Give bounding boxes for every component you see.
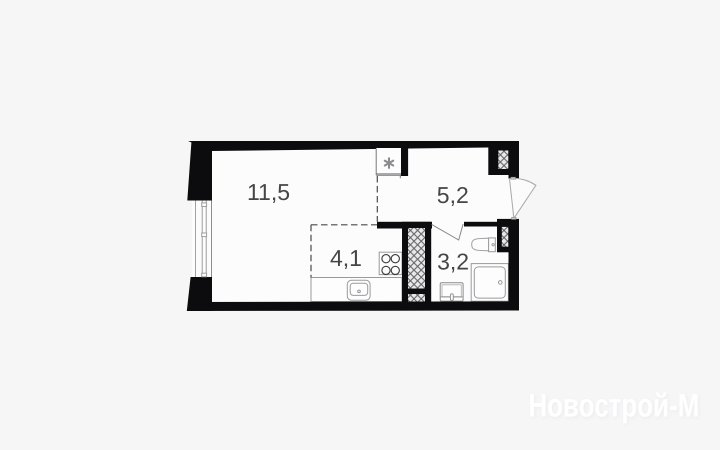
svg-text:Новострой-М: Новострой-М <box>528 386 699 423</box>
svg-text:4,1: 4,1 <box>330 245 362 271</box>
svg-text:3,2: 3,2 <box>437 249 469 275</box>
svg-text:5,2: 5,2 <box>437 182 469 208</box>
svg-text:11,5: 11,5 <box>247 179 290 205</box>
